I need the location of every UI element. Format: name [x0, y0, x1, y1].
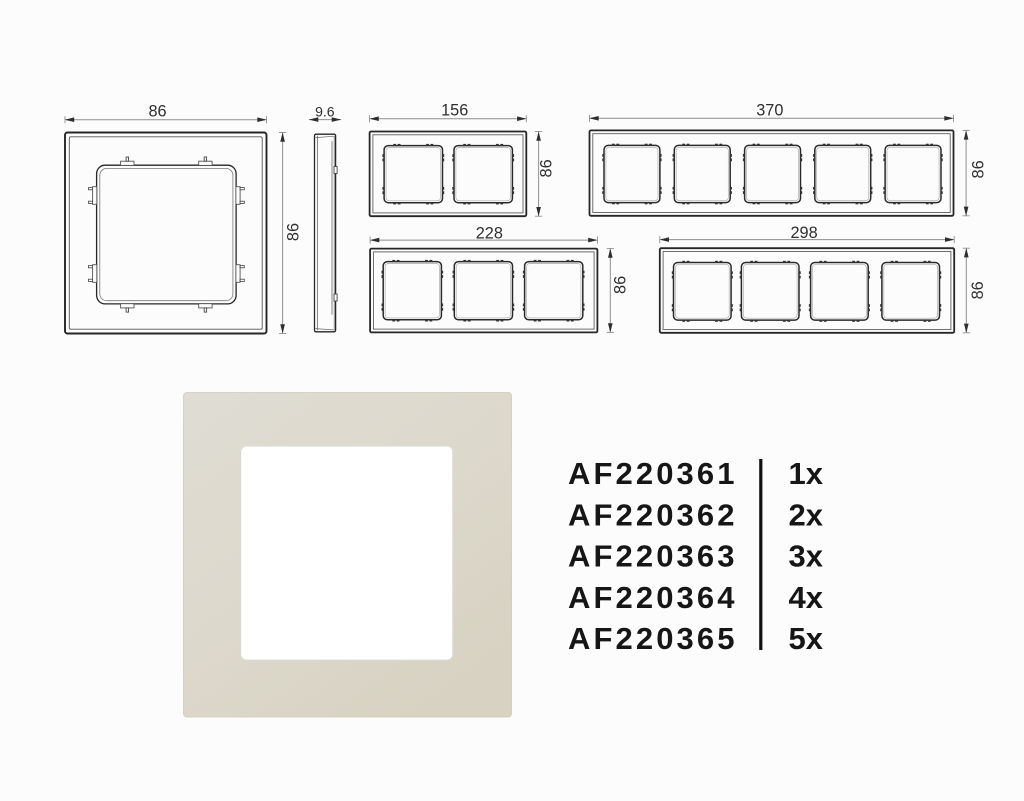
svg-text:86: 86 [284, 223, 302, 241]
svg-text:AF220364: AF220364 [568, 580, 738, 615]
svg-text:AF220365: AF220365 [568, 621, 738, 656]
svg-text:298: 298 [791, 224, 818, 242]
svg-text:86: 86 [148, 103, 166, 121]
svg-text:86: 86 [969, 281, 987, 299]
svg-text:86: 86 [969, 160, 987, 178]
svg-text:9.6: 9.6 [315, 103, 335, 119]
svg-text:AF220362: AF220362 [568, 497, 738, 532]
svg-text:4x: 4x [789, 580, 824, 615]
svg-text:228: 228 [476, 224, 503, 242]
svg-text:86: 86 [538, 159, 556, 177]
svg-text:2x: 2x [789, 497, 824, 532]
svg-text:5x: 5x [789, 621, 824, 656]
svg-text:AF220363: AF220363 [568, 539, 738, 574]
svg-text:156: 156 [441, 102, 468, 120]
svg-text:1x: 1x [789, 456, 824, 491]
svg-text:AF220361: AF220361 [568, 456, 738, 491]
svg-text:370: 370 [756, 101, 783, 119]
svg-text:86: 86 [611, 276, 629, 294]
svg-text:3x: 3x [789, 539, 824, 574]
